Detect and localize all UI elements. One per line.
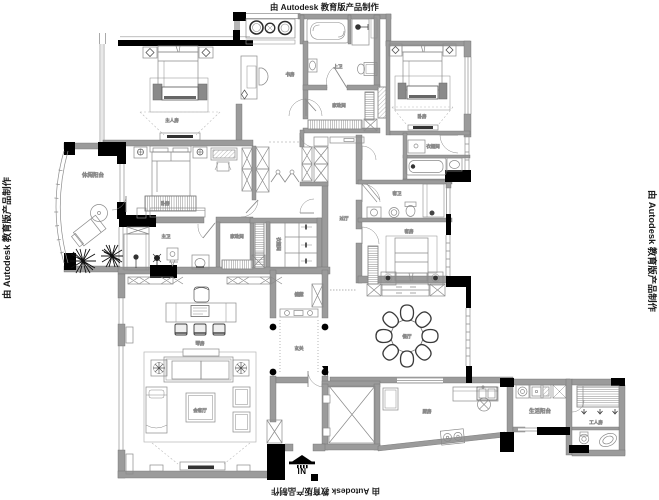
svg-text:客房: 客房 [405,228,414,235]
svg-text:由 Autodesk 教育版产品制作: 由 Autodesk 教育版产品制作 [1,176,12,299]
svg-text:家政间: 家政间 [332,102,346,109]
svg-text:由 Autodesk 教育版产品制作: 由 Autodesk 教育版产品制作 [271,487,380,497]
svg-text:客卫: 客卫 [393,190,402,197]
svg-text:由 Autodesk 教育版产品制作: 由 Autodesk 教育版产品制作 [270,2,379,12]
svg-text:储藏: 储藏 [295,291,304,298]
svg-text:餐厅: 餐厅 [403,333,412,340]
svg-text:卧房: 卧房 [161,200,170,207]
svg-text:休闲阳台: 休闲阳台 [82,171,105,179]
svg-text:工人房: 工人房 [589,419,603,426]
svg-text:会客厅: 会客厅 [193,407,207,414]
svg-text:玄关: 玄关 [295,345,304,352]
svg-text:琴房: 琴房 [196,340,205,347]
svg-text:IN: IN [298,467,307,476]
svg-text:衣帽间: 衣帽间 [275,237,282,251]
svg-text:主卫: 主卫 [162,233,171,239]
svg-text:卧房: 卧房 [418,113,427,120]
svg-text:主人房: 主人房 [165,117,179,124]
svg-text:由 Autodesk 教育版产品制作: 由 Autodesk 教育版产品制作 [647,190,658,313]
svg-text:过厅: 过厅 [340,215,349,222]
svg-text:家政间: 家政间 [230,233,244,240]
svg-text:书房: 书房 [286,71,295,78]
svg-text:衣帽间: 衣帽间 [426,143,440,150]
svg-text:厨房: 厨房 [423,408,432,415]
svg-text:生活阳台: 生活阳台 [529,407,552,415]
svg-text:上卫: 上卫 [334,63,343,69]
